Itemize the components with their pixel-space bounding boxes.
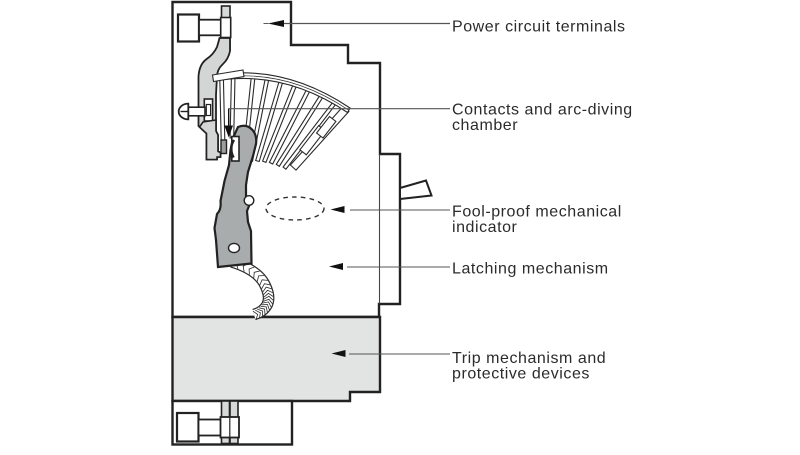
svg-text:Contacts and arc-diving: Contacts and arc-diving <box>452 101 633 118</box>
svg-text:indicator: indicator <box>452 219 518 236</box>
svg-text:Power circuit terminals: Power circuit terminals <box>452 19 626 36</box>
svg-text:Fool-proof mechanical: Fool-proof mechanical <box>452 204 622 221</box>
svg-text:protective devices: protective devices <box>452 366 590 383</box>
svg-text:chamber: chamber <box>452 117 518 134</box>
svg-text:Latching mechanism: Latching mechanism <box>452 261 609 278</box>
svg-text:Trip mechanism and: Trip mechanism and <box>452 350 606 367</box>
